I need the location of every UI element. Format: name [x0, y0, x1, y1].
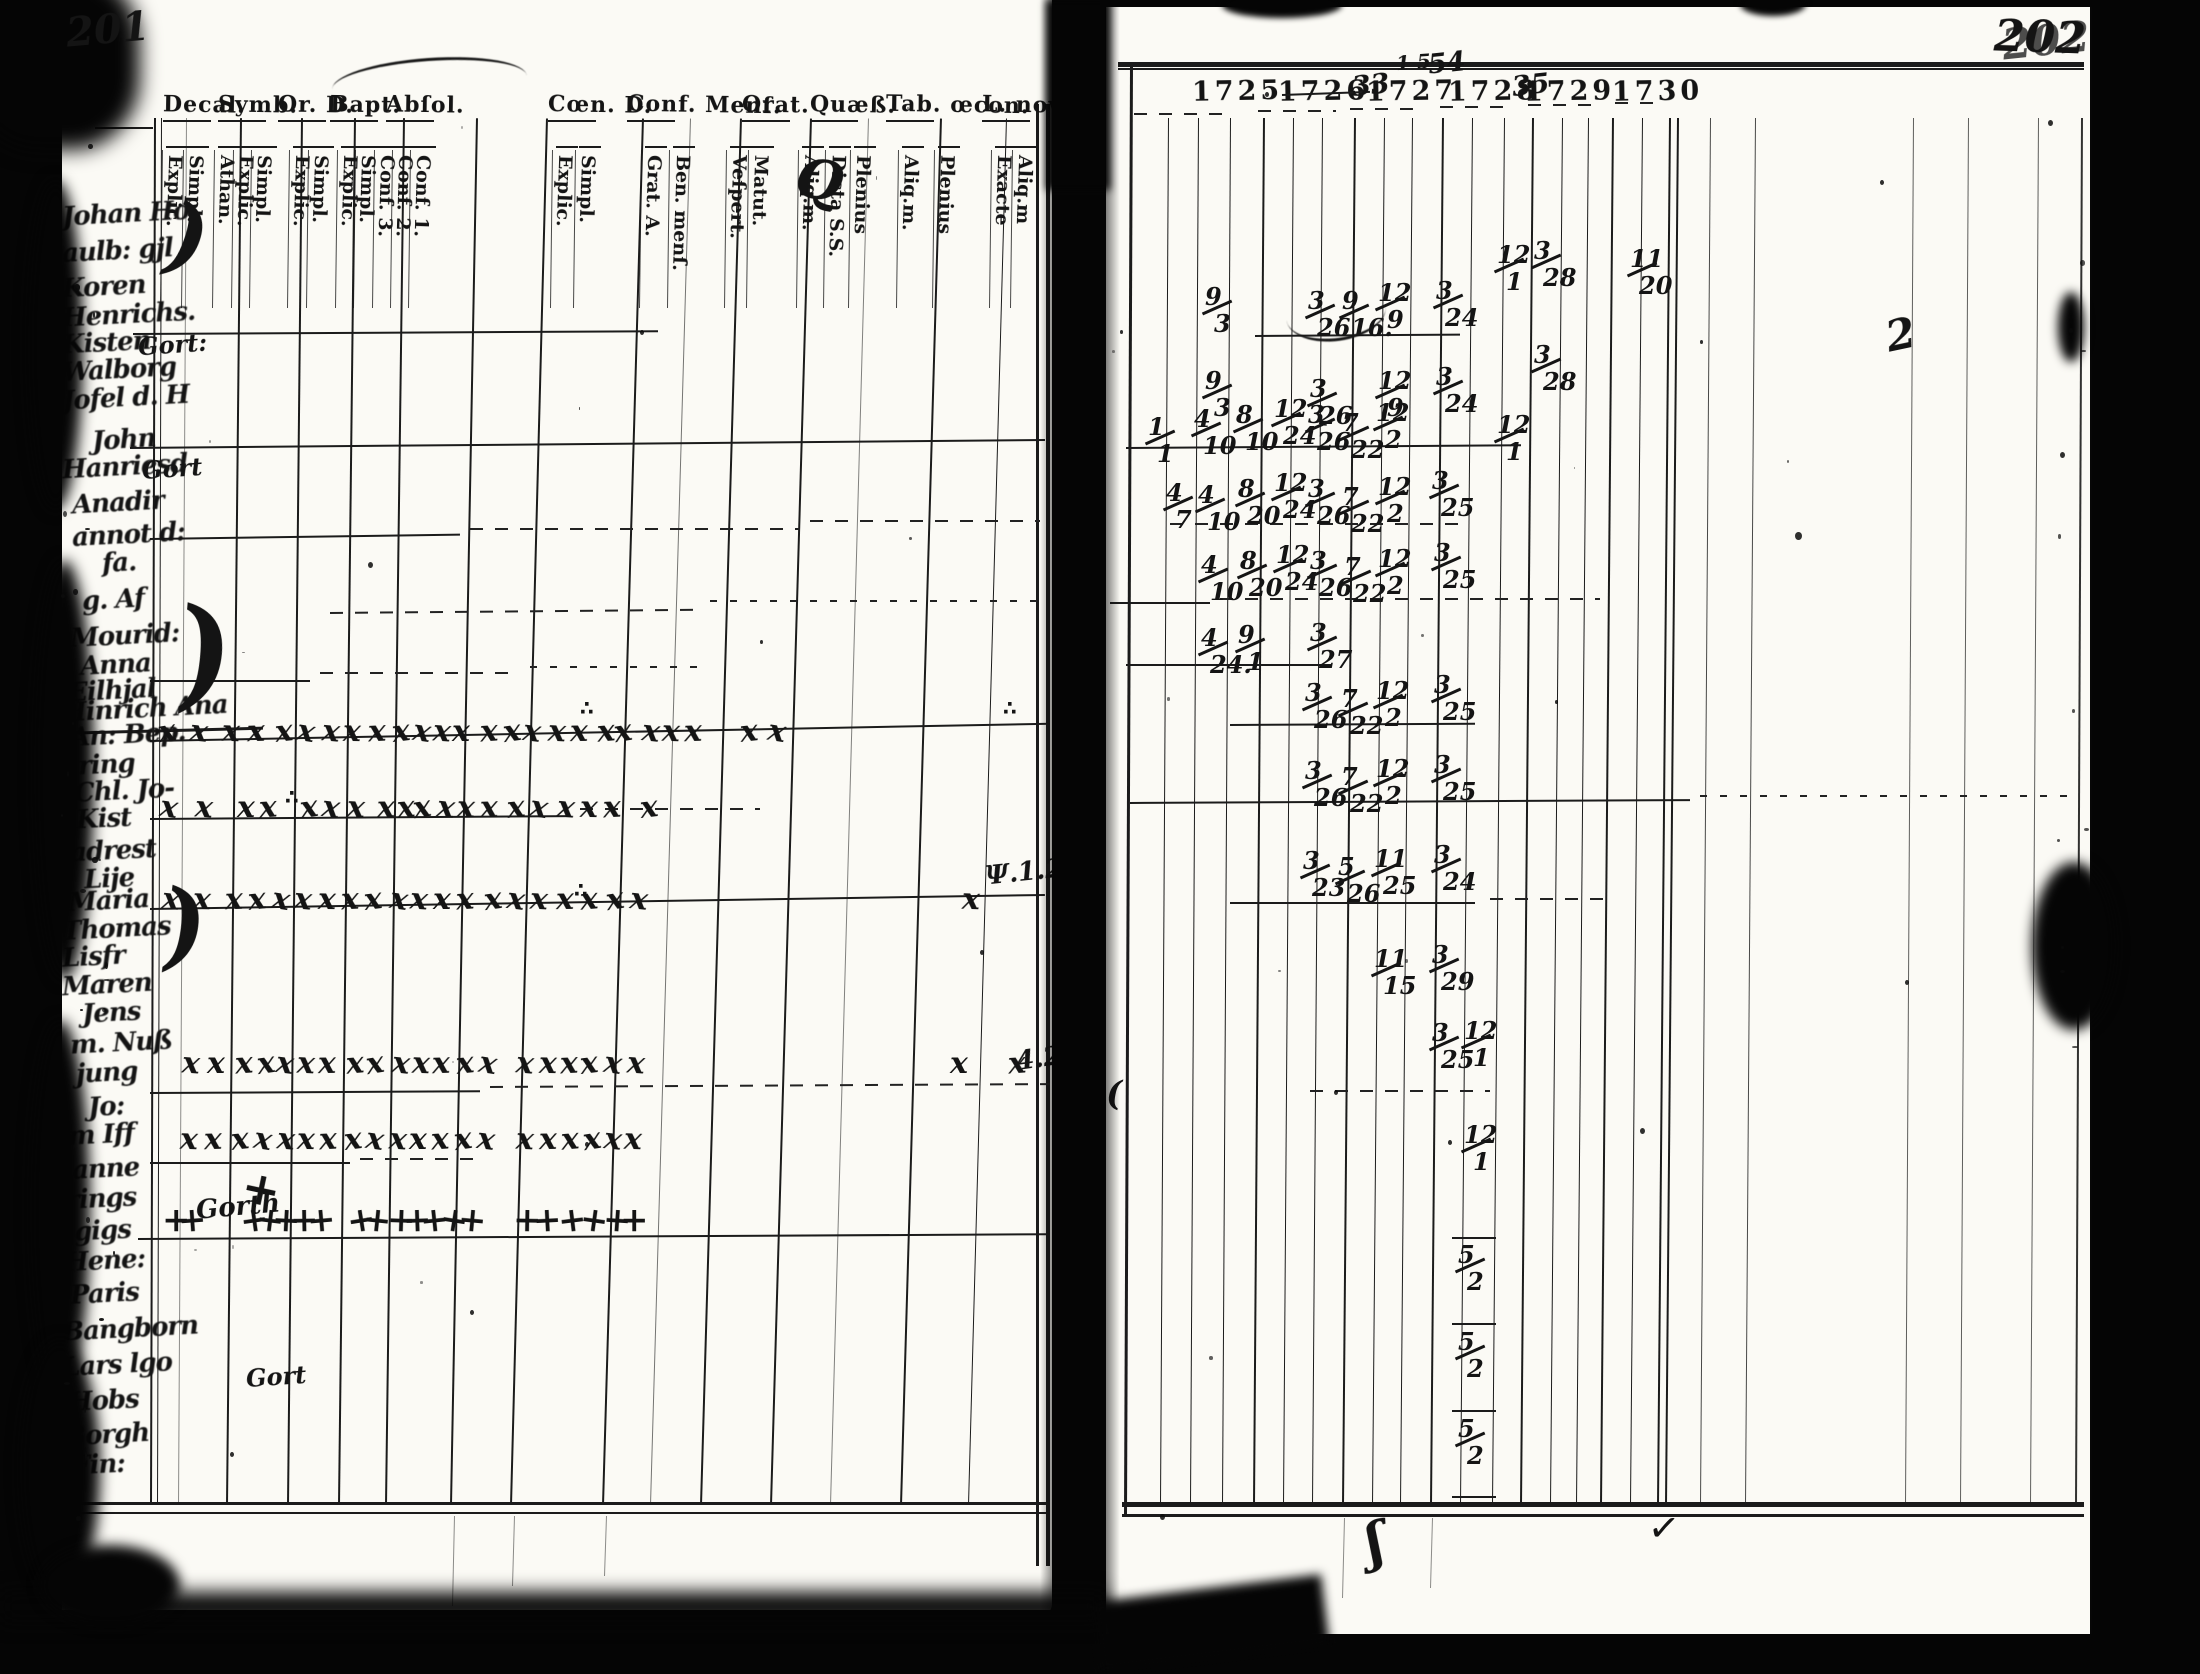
scan-edge-blob [34, 560, 94, 980]
page-number-right-overwrite: 202 [2000, 12, 2092, 70]
ink-blot [1265, 92, 1269, 97]
speckle [80, 1009, 84, 1011]
ink-blot [760, 640, 763, 644]
speckle [2072, 1046, 2078, 1048]
scan-right-nick [2058, 292, 2084, 362]
ink-blot [640, 330, 644, 335]
ink-blot [1160, 1514, 1165, 1520]
speckle [242, 652, 245, 654]
grid-vline-stub [604, 1516, 607, 1576]
ink-blot [1905, 980, 1909, 985]
speckle [76, 1516, 81, 1521]
ink-blot [368, 562, 373, 568]
speckle [61, 594, 65, 597]
speckle [105, 962, 107, 969]
speckle [113, 1251, 115, 1255]
speckle [194, 1249, 197, 1251]
speckle [876, 176, 878, 180]
speckle [92, 857, 98, 862]
ink-blot [1795, 532, 1802, 540]
speckle [461, 126, 463, 129]
speckle [74, 284, 80, 290]
speckle [1574, 467, 1576, 469]
ink-blot [1555, 700, 1558, 704]
ink-blot [230, 1452, 234, 1457]
speckle [1787, 460, 1789, 463]
ink-blot [1448, 1140, 1452, 1145]
speckle [1337, 438, 1340, 442]
speckle [1449, 371, 1452, 373]
gutter-shadow-soft [1040, 0, 1120, 1674]
speckle [73, 589, 77, 595]
speckle [2069, 328, 2074, 333]
speckle [1278, 970, 1281, 973]
scan-edge-blob [28, 180, 83, 510]
speckle [93, 312, 95, 318]
speckle [420, 1281, 423, 1283]
grid-vline-stub [1430, 1518, 1433, 1588]
speckle [1209, 1356, 1213, 1360]
speckle [85, 528, 90, 530]
speckle [1421, 634, 1424, 638]
grid-vline-stub [512, 1516, 515, 1586]
speckle [104, 979, 108, 981]
speckle [2081, 350, 2086, 352]
scan-artifacts [0, 0, 2200, 1674]
speckle [909, 537, 912, 540]
page-number-left: 201 [64, 2, 151, 56]
speckle [209, 440, 211, 443]
speckle [84, 1407, 87, 1413]
ink-blot [1334, 1090, 1338, 1095]
gutter-top-blob [1046, 0, 1110, 190]
ink-blot [1120, 330, 1123, 334]
ink-blot [980, 950, 984, 955]
scan-edge-right [2092, 0, 2200, 1674]
speckle [102, 1008, 106, 1012]
scan-right-blob [2032, 862, 2116, 1030]
scanned-register-spread: Decal.Explic.Simpl.Symb.Athan.Explic.Sim… [0, 0, 2200, 1674]
grid-vline-stub [1342, 1518, 1345, 1598]
speckle [579, 407, 581, 409]
speckle [2080, 260, 2085, 265]
speckle [1167, 697, 1170, 700]
speckle [80, 889, 86, 893]
speckle [1405, 959, 1409, 962]
speckle [85, 1452, 87, 1459]
speckle [88, 144, 92, 149]
speckle [98, 859, 101, 861]
speckle [907, 107, 909, 109]
speckle [452, 1061, 454, 1063]
speckle [99, 841, 101, 843]
speckle [2084, 828, 2089, 831]
speckle [2057, 839, 2060, 842]
ink-blot [2060, 452, 2065, 458]
speckle [1324, 424, 1327, 426]
scan-top-blob [1222, 0, 1342, 18]
ink-blot [2048, 120, 2053, 126]
scan-top-blob [1740, 0, 1806, 16]
ink-blot [1880, 180, 1884, 185]
speckle [99, 1318, 104, 1321]
speckle [2058, 534, 2062, 539]
ink-blot [1640, 1128, 1645, 1134]
speckle [2072, 709, 2075, 713]
scan-corner-blob [40, 1545, 180, 1625]
ink-blot [470, 1310, 474, 1315]
speckle [232, 1245, 234, 1249]
ink-blot [585, 1142, 589, 1147]
speckle [63, 511, 67, 517]
ink-blot [1700, 340, 1703, 344]
